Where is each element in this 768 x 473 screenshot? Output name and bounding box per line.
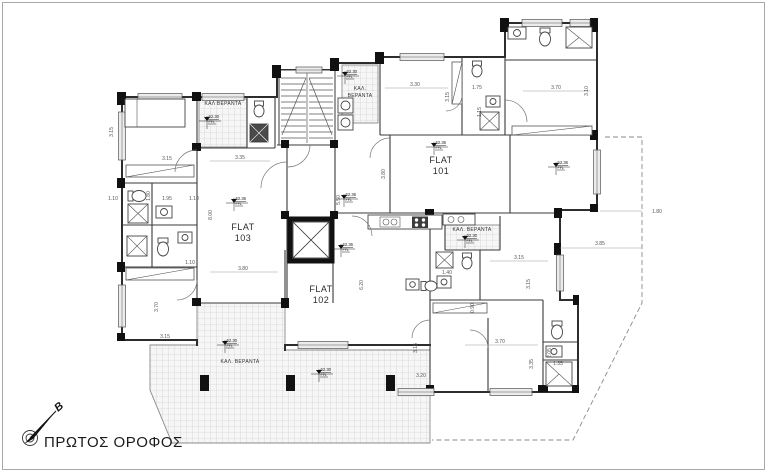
veranda-bottom-label: ΚΑΛ. ΒΕΡΑΝΤΑ xyxy=(221,359,260,365)
flat-103-number: 103 xyxy=(235,233,252,243)
svg-text:62.36: 62.36 xyxy=(436,140,447,145)
dimension-label: 3.15 xyxy=(514,255,524,261)
dimension-label: 3.80 xyxy=(238,266,248,272)
toilet xyxy=(462,253,472,269)
flat-101-number: 101 xyxy=(433,166,450,176)
dimension-label: 2.05 xyxy=(547,348,553,358)
toilet xyxy=(158,238,169,256)
dimension-label: 1.95 xyxy=(162,196,172,202)
dimension-label: 3.15 xyxy=(162,156,172,162)
wardrobe xyxy=(126,268,194,280)
svg-text:62.36: 62.36 xyxy=(558,160,569,165)
dimension-label: 3.35 xyxy=(529,359,535,369)
dimension-label: 1.40 xyxy=(442,270,452,276)
sink xyxy=(178,232,192,243)
shower xyxy=(436,252,453,268)
planter xyxy=(338,115,353,130)
dimension-label: 3.15 xyxy=(160,334,170,340)
svg-text:62.36: 62.36 xyxy=(343,242,354,247)
svg-text:62.30: 62.30 xyxy=(227,338,238,343)
dimension-label: 1.35 xyxy=(553,361,563,367)
dimension-label: 1.10 xyxy=(185,260,195,266)
flat-102-number: 102 xyxy=(313,295,330,305)
floor-plan-page: FLAT 101 FLAT 102 FLAT 103 ΚΑΛ ΒΕΡΑΝΤΑ Κ… xyxy=(0,0,768,473)
staircase xyxy=(279,70,335,145)
wardrobe xyxy=(126,165,194,177)
toilet xyxy=(552,321,563,339)
sink xyxy=(156,206,172,218)
shower xyxy=(566,27,592,48)
dimension-label: 1.15 xyxy=(477,107,483,117)
page-title: ΠΡΩΤΟΣ ΟΡΟΦΟΣ xyxy=(44,434,183,451)
flat-102-name: FLAT xyxy=(309,284,332,294)
dimension-label: 3.15 xyxy=(445,92,451,102)
svg-text:FFL: FFL xyxy=(343,248,349,252)
window xyxy=(119,285,126,327)
window xyxy=(202,94,244,101)
dimension-label: 3.30 xyxy=(410,82,420,88)
toilet xyxy=(540,28,551,46)
wardrobe xyxy=(433,303,487,313)
veranda-mid-label-1: ΚΑΛ. xyxy=(354,86,367,92)
shower xyxy=(127,236,147,256)
dimension-label: 3.20 xyxy=(416,373,426,379)
stove xyxy=(412,217,428,229)
dimension-label: 0.90 xyxy=(470,303,476,313)
flat-101-name: FLAT xyxy=(429,155,452,165)
wardrobe xyxy=(452,62,462,104)
sink xyxy=(437,276,451,288)
flat-102-label: FLAT 102 xyxy=(309,284,332,305)
window xyxy=(296,67,322,73)
svg-text:FFL: FFL xyxy=(346,198,352,202)
elevator-shaft xyxy=(290,219,332,261)
toilet xyxy=(472,61,482,77)
window xyxy=(119,112,126,160)
dimension-label: 3.15 xyxy=(526,279,532,289)
svg-text:FFL: FFL xyxy=(558,166,564,170)
dimension-label: 8.00 xyxy=(208,210,214,220)
dimension-label: 3.70 xyxy=(154,302,160,312)
dimension-label: 3.70 xyxy=(495,339,505,345)
svg-text:FFL: FFL xyxy=(347,75,353,79)
window xyxy=(490,389,532,396)
dimension-label: 3.15 xyxy=(109,127,115,137)
veranda-mid-label-2: ΒΕΡΑΝΤΑ xyxy=(348,93,373,99)
window xyxy=(570,20,590,27)
shower xyxy=(250,124,268,142)
veranda-top-label: ΚΑΛ ΒΕΡΑΝΤΑ xyxy=(204,101,241,107)
toilet xyxy=(254,101,264,117)
toilet xyxy=(128,191,146,202)
dimension-label: 5.50 xyxy=(336,195,342,205)
svg-text:FFL: FFL xyxy=(236,202,242,206)
dimension-label: 3.80 xyxy=(381,169,387,179)
window xyxy=(522,20,562,27)
dimension-label: 1.10 xyxy=(108,196,118,202)
dimension-label: 3.15 xyxy=(413,343,419,353)
sink xyxy=(486,96,500,107)
svg-text:62.36: 62.36 xyxy=(346,192,357,197)
svg-text:FFL: FFL xyxy=(209,120,215,124)
toilet xyxy=(421,281,437,291)
shower xyxy=(128,204,148,223)
dimension-label: 1.80 xyxy=(652,209,662,215)
dimension-label: 3.35 xyxy=(235,155,245,161)
dimension-label: 3.10 xyxy=(584,86,590,96)
sink xyxy=(406,279,419,290)
svg-text:FFL: FFL xyxy=(321,373,327,377)
planter xyxy=(338,98,353,113)
window xyxy=(594,150,601,194)
window xyxy=(298,342,348,349)
dimension-label: 3.70 xyxy=(551,85,561,91)
window xyxy=(398,389,434,396)
svg-text:62.36: 62.36 xyxy=(236,196,247,201)
flat-103-label: FLAT 103 xyxy=(231,222,254,243)
floor-plan-drawing: FLAT 101 FLAT 102 FLAT 103 ΚΑΛ ΒΕΡΑΝΤΑ Κ… xyxy=(0,0,768,473)
sink xyxy=(508,27,526,39)
dimension-label: 3.85 xyxy=(595,241,605,247)
svg-text:FFL: FFL xyxy=(227,344,233,348)
dimension-label: 1.80 xyxy=(146,191,152,201)
svg-text:62.30: 62.30 xyxy=(321,367,332,372)
svg-text:62.30: 62.30 xyxy=(467,233,478,238)
window xyxy=(400,54,444,61)
dimension-label: 1.10 xyxy=(189,196,199,202)
bed xyxy=(125,99,185,127)
svg-text:62.30: 62.30 xyxy=(209,114,220,119)
dimension-label: 6.20 xyxy=(359,280,365,290)
kitchen-sink xyxy=(443,214,475,225)
svg-text:FFL: FFL xyxy=(436,146,442,150)
window xyxy=(557,255,564,291)
svg-text:FFL: FFL xyxy=(467,239,473,243)
flat-101-label: FLAT 101 xyxy=(429,155,452,176)
svg-text:62.30: 62.30 xyxy=(347,69,358,74)
kitchen-counter xyxy=(368,215,442,229)
wardrobe xyxy=(512,126,592,135)
flat-103-name: FLAT xyxy=(231,222,254,232)
dimension-label: 1.75 xyxy=(472,85,482,91)
